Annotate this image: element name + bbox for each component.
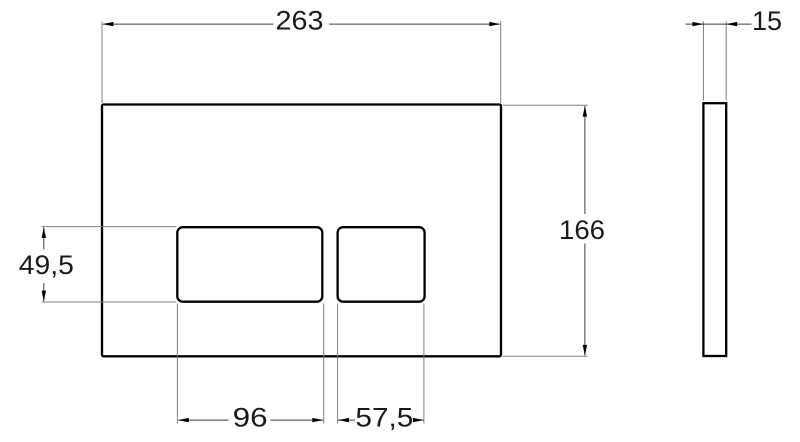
svg-text:263: 263 (276, 6, 324, 36)
svg-text:166: 166 (559, 215, 605, 245)
svg-text:15: 15 (752, 6, 782, 36)
svg-text:57,5: 57,5 (355, 403, 413, 433)
svg-text:96: 96 (233, 403, 268, 433)
svg-text:49,5: 49,5 (19, 250, 74, 280)
